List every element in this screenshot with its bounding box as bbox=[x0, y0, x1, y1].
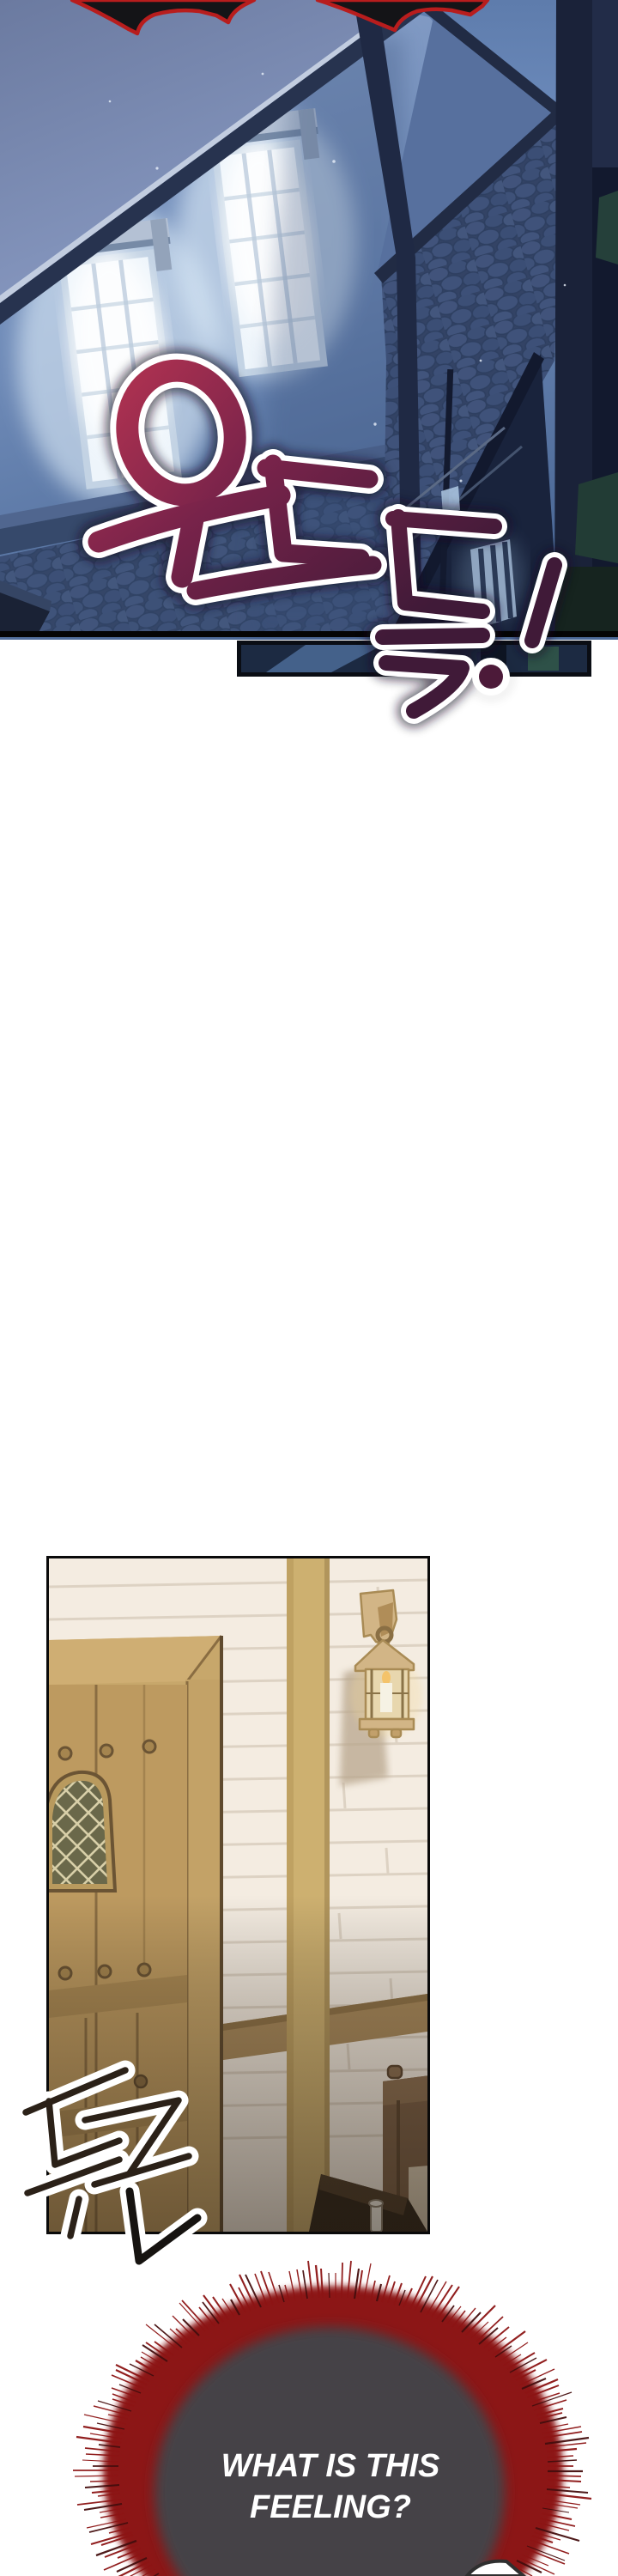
svg-text:WHAT IS THIS: WHAT IS THIS bbox=[221, 2448, 440, 2484]
svg-text:FEELING?: FEELING? bbox=[250, 2489, 411, 2525]
